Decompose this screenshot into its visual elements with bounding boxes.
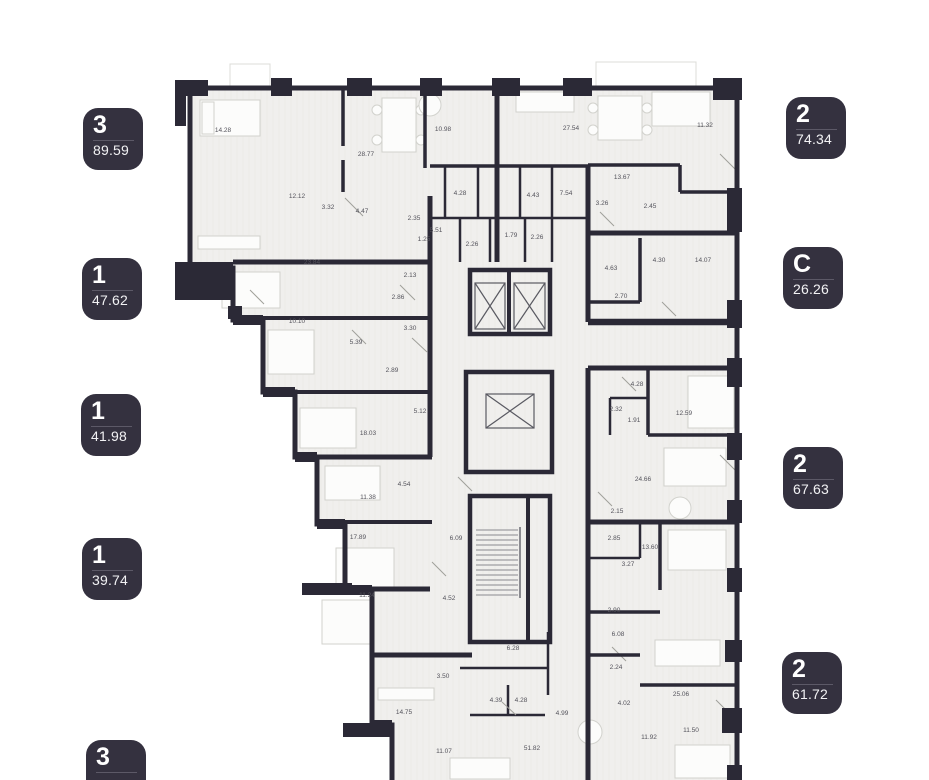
room-area-label: 6.09	[450, 535, 463, 542]
badge-divider	[796, 129, 837, 130]
room-area-label: 2.24	[610, 664, 623, 671]
apartment-type: 2	[793, 452, 843, 477]
apartment-type: 2	[792, 657, 842, 682]
badge-divider	[93, 140, 134, 141]
apartment-badge[interactable]: 3 89.59	[83, 108, 143, 170]
room-area-label: 13.60	[642, 544, 659, 551]
apartment-type: 1	[92, 543, 142, 568]
room-area-label: 4.02	[618, 700, 631, 707]
apartment-badge[interactable]: 1 41.98	[81, 394, 141, 456]
room-area-label: 4.30	[653, 257, 666, 264]
room-area-label: 10.10	[289, 318, 306, 325]
apartment-type: 3	[93, 113, 143, 138]
room-area-label: 2.32	[610, 406, 623, 413]
room-area-label: 11.24	[359, 592, 375, 599]
room-area-label: 12.59	[676, 410, 693, 417]
badge-divider	[92, 570, 133, 571]
apartment-badge[interactable]: 1 39.74	[82, 538, 142, 600]
room-area-label: 4.47	[356, 208, 369, 215]
room-area-label: 2.15	[611, 508, 624, 515]
badge-divider	[92, 290, 133, 291]
room-area-label: 4.54	[398, 481, 411, 488]
room-area-label: 4.28	[454, 190, 467, 197]
floor-plan-view: 14.2828.7710.9812.123.324.472.355.511.25…	[0, 0, 929, 780]
apartment-badge[interactable]: 3	[86, 740, 146, 780]
apartment-area: 89.59	[93, 142, 143, 158]
room-area-label: 2.35	[408, 215, 421, 222]
room-area-label: 11.38	[360, 494, 376, 501]
room-area-label: 10.98	[435, 126, 452, 133]
apartment-area: 26.26	[793, 281, 843, 297]
room-area-label: 11.92	[641, 734, 657, 741]
room-area-label: 14.28	[215, 127, 232, 134]
room-area-label: 2.86	[392, 294, 405, 301]
room-area-label: 2.89	[386, 367, 399, 374]
room-area-label: 5.12	[414, 408, 427, 415]
room-area-label: 6.08	[612, 631, 625, 638]
room-area-label: 25.06	[673, 691, 690, 698]
room-area-label: 6.28	[507, 645, 520, 652]
room-area-label: 13.67	[614, 174, 631, 181]
apartment-badge[interactable]: 1 47.62	[82, 258, 142, 320]
room-area-label: 2.26	[531, 234, 544, 241]
room-area-label: 4.52	[443, 595, 456, 602]
room-area-label: 12.12	[289, 193, 306, 200]
room-area-label: 27.54	[563, 125, 580, 132]
room-area-label: 51.82	[524, 745, 541, 752]
room-area-label: 5.39	[350, 339, 363, 346]
room-area-label: 17.89	[350, 534, 367, 541]
apartment-area: 61.72	[792, 686, 842, 702]
apartment-area: 47.62	[92, 292, 142, 308]
apartment-badge[interactable]: C 26.26	[783, 247, 843, 309]
room-area-label: 2.90	[608, 607, 621, 614]
apartment-type: C	[793, 252, 843, 277]
room-area-label: 4.43	[527, 192, 540, 199]
room-area-label: 24.66	[635, 476, 652, 483]
room-area-label: 14.75	[396, 709, 413, 716]
badge-divider	[793, 479, 834, 480]
room-area-label: 28.77	[358, 151, 375, 158]
room-area-label: 2.85	[608, 535, 621, 542]
apartment-area: 41.98	[91, 428, 141, 444]
room-area-label: 23.84	[304, 259, 321, 266]
room-area-label: 2.13	[404, 272, 417, 279]
building-footprint	[190, 62, 737, 780]
room-area-label: 1.25	[418, 236, 431, 243]
room-area-label: 4.28	[515, 697, 528, 704]
badge-divider	[91, 426, 132, 427]
apartment-type: 2	[796, 102, 846, 127]
apartment-type: 3	[96, 745, 146, 770]
badge-divider	[792, 684, 833, 685]
apartment-badge[interactable]: 2 74.34	[786, 97, 846, 159]
badge-divider	[96, 772, 137, 773]
room-area-label: 7.54	[560, 190, 573, 197]
apartment-area: 74.34	[796, 131, 846, 147]
room-area-label: 3.26	[596, 200, 609, 207]
room-area-label: 3.30	[404, 325, 417, 332]
badge-divider	[793, 279, 834, 280]
room-area-label: 18.03	[360, 430, 377, 437]
room-area-label: 2.70	[615, 293, 628, 300]
room-area-label: 14.07	[695, 257, 712, 264]
room-area-label: 3.27	[622, 561, 635, 568]
apartment-badge[interactable]: 2 67.63	[783, 447, 843, 509]
room-area-label: 11.32	[697, 122, 713, 129]
apartment-area: 67.63	[793, 481, 843, 497]
room-area-label: 3.32	[322, 204, 335, 211]
room-area-label: 4.63	[605, 265, 618, 272]
room-area-label: 4.99	[556, 710, 569, 717]
apartment-area: 39.74	[92, 572, 142, 588]
room-area-label: 1.79	[505, 232, 518, 239]
room-area-label: 11.07	[436, 748, 452, 755]
room-area-label: 4.28	[631, 381, 644, 388]
apartment-type: 1	[92, 263, 142, 288]
room-area-label: 5.51	[430, 227, 443, 234]
room-area-label: 3.50	[437, 673, 450, 680]
apartment-type: 1	[91, 399, 141, 424]
room-area-label: 11.50	[683, 727, 699, 734]
room-area-label: 2.26	[466, 241, 479, 248]
apartment-badge[interactable]: 2 61.72	[782, 652, 842, 714]
room-area-label: 4.39	[490, 697, 503, 704]
room-area-label: 2.45	[644, 203, 657, 210]
room-area-label: 1.91	[628, 417, 641, 424]
